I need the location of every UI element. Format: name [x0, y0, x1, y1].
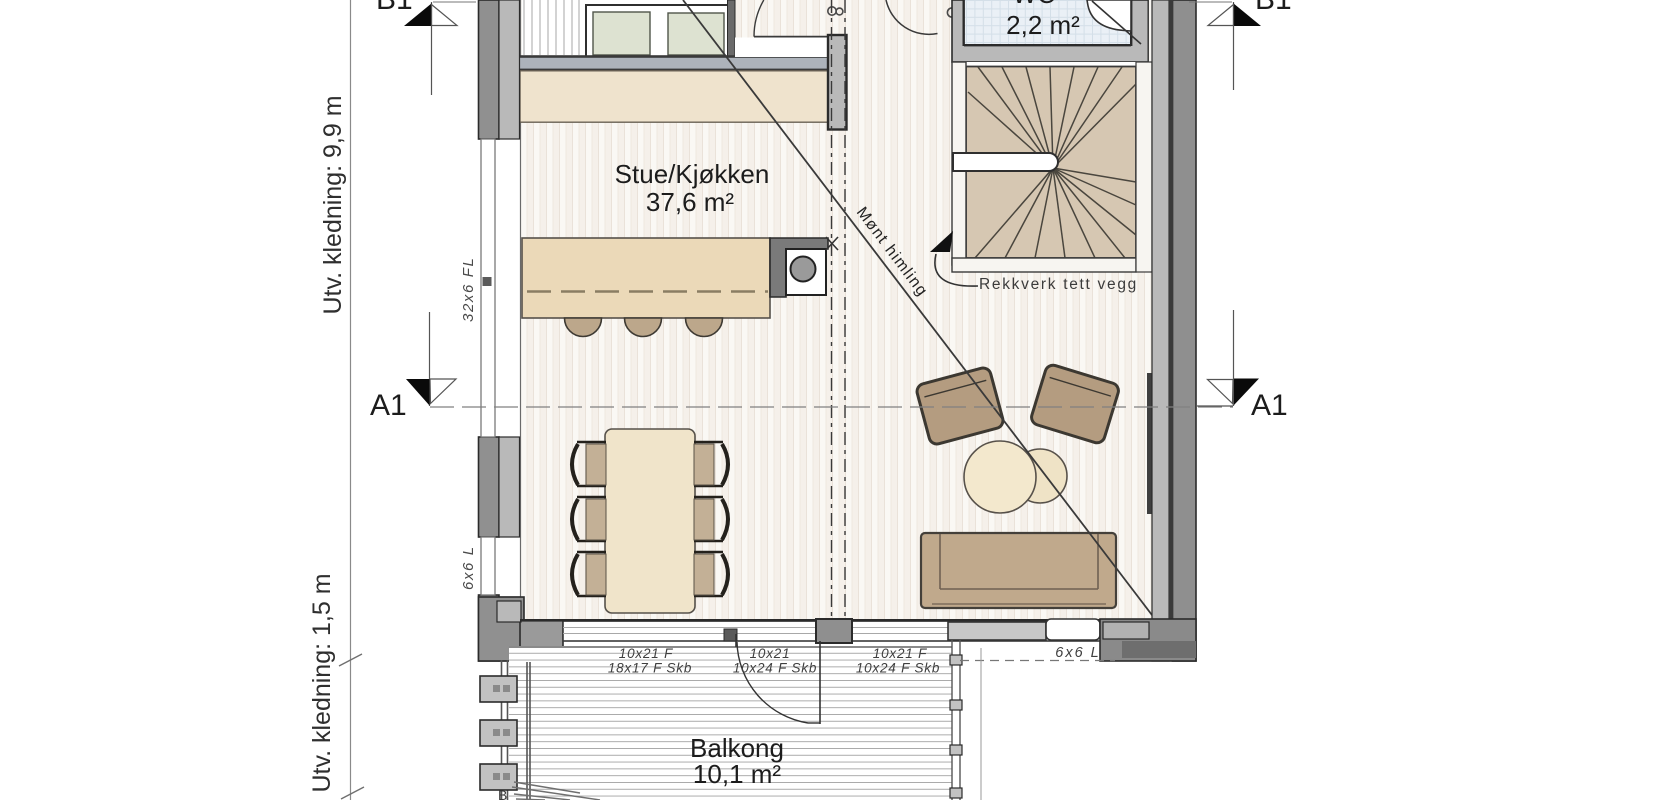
svg-text:32x6 FL: 32x6 FL — [460, 257, 477, 322]
svg-text:Stue/Kjøkken: Stue/Kjøkken — [615, 159, 770, 189]
svg-text:10,1 m²: 10,1 m² — [693, 759, 781, 789]
svg-text:37,6 m²: 37,6 m² — [646, 187, 734, 217]
svg-text:10x24 F Skb: 10x24 F Skb — [856, 661, 940, 676]
svg-text:10x21 F: 10x21 F — [619, 646, 673, 661]
svg-text:B: B — [498, 787, 507, 800]
svg-text:Utv. kledning: 1,5 m: Utv. kledning: 1,5 m — [308, 573, 336, 792]
svg-text:Utv. kledning: 9,9 m: Utv. kledning: 9,9 m — [319, 95, 347, 314]
svg-text:Rekkverk tett vegg: Rekkverk tett vegg — [979, 276, 1138, 293]
svg-text:10x24 F Skb: 10x24 F Skb — [733, 661, 817, 676]
svg-text:18x17 F Skb: 18x17 F Skb — [608, 661, 692, 676]
svg-text:10x21: 10x21 — [750, 646, 791, 661]
svg-text:6x6 L: 6x6 L — [460, 545, 477, 590]
svg-text:6x6 L: 6x6 L — [1055, 645, 1100, 661]
svg-text:WC: WC — [1012, 0, 1055, 9]
svg-text:B1: B1 — [376, 0, 413, 16]
svg-text:A1: A1 — [1251, 389, 1288, 422]
svg-text:10x21 F: 10x21 F — [873, 646, 927, 661]
svg-text:B1: B1 — [1255, 0, 1292, 16]
svg-text:A1: A1 — [370, 389, 407, 422]
svg-text:2,2 m²: 2,2 m² — [1006, 10, 1080, 40]
